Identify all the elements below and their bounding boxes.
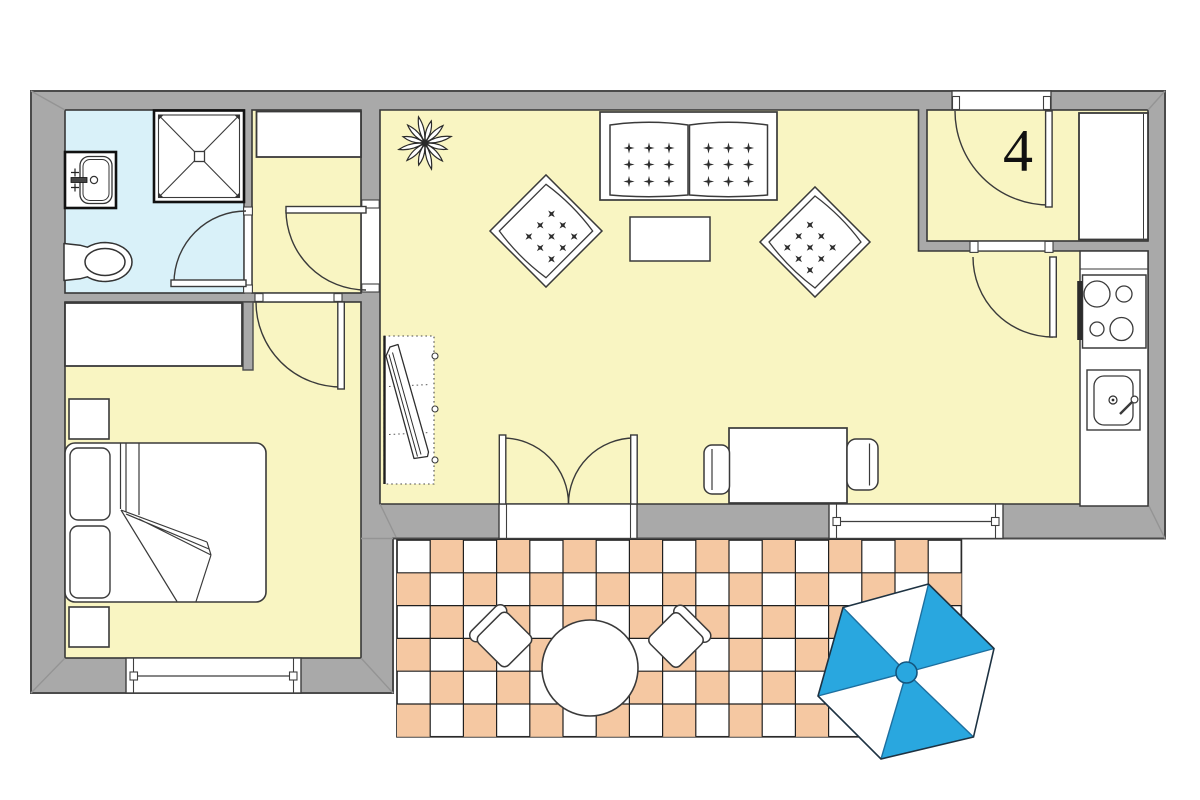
svg-text:4: 4	[1003, 118, 1033, 184]
